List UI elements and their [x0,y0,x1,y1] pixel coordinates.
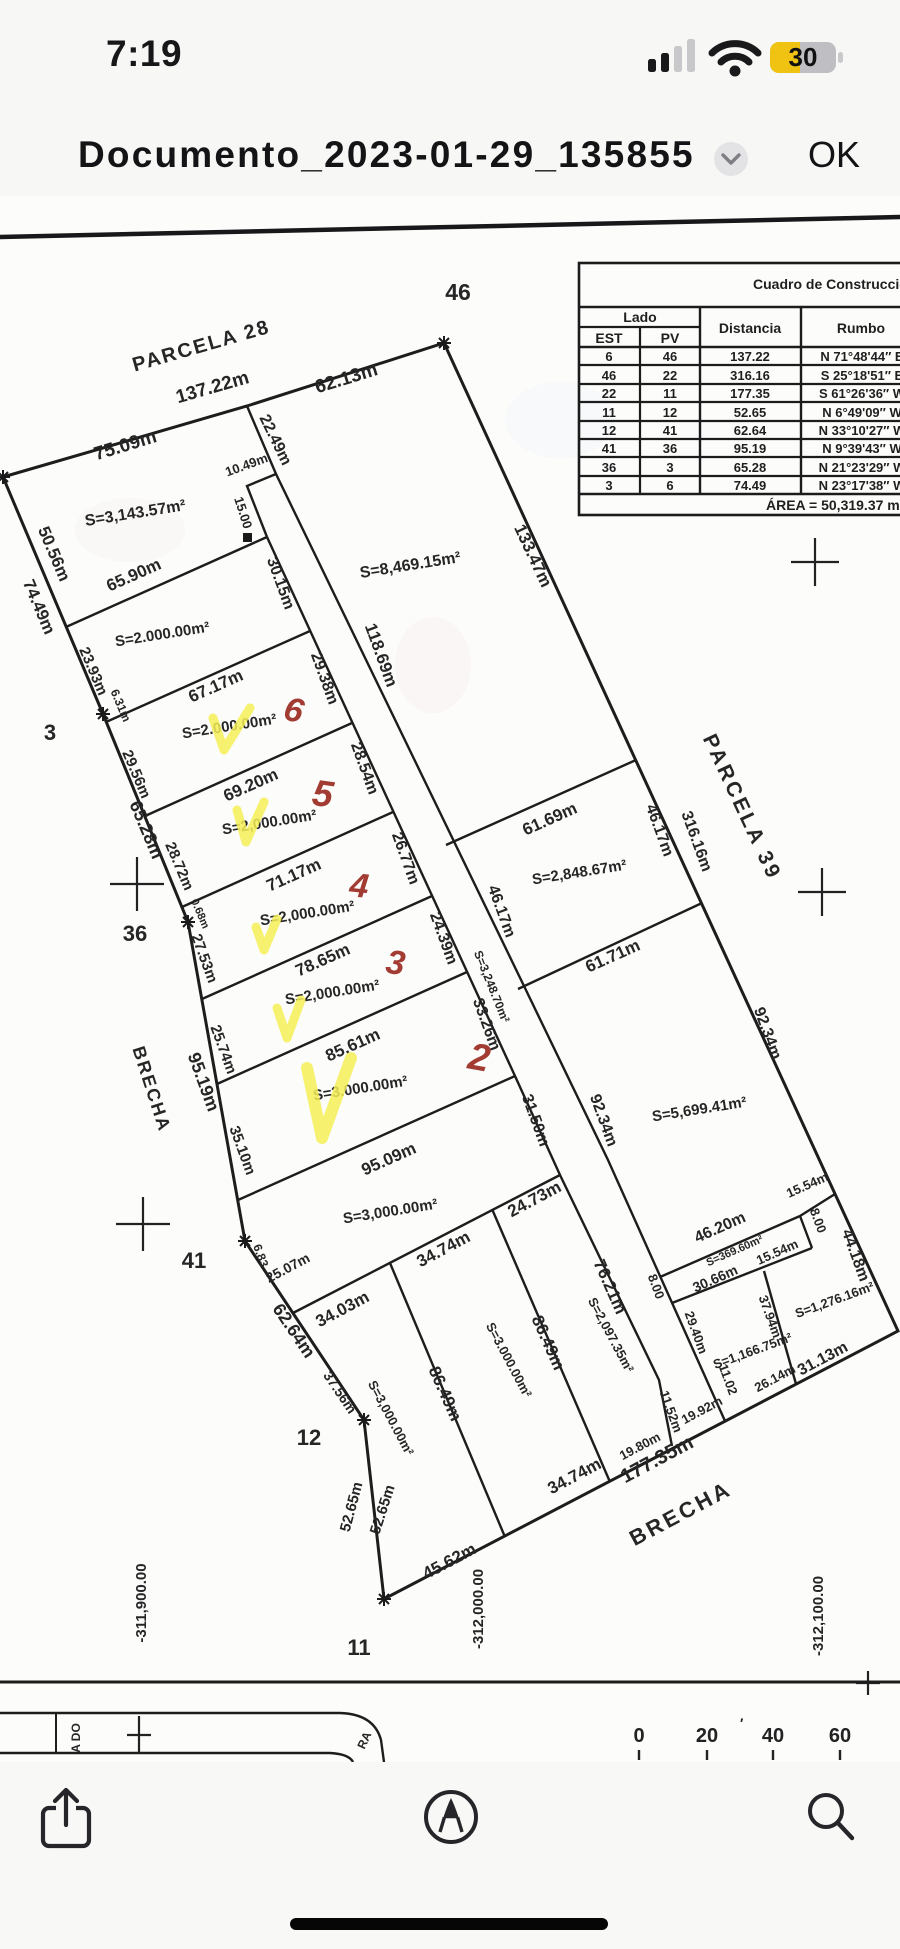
svg-text:6: 6 [605,349,612,364]
svg-text:22: 22 [602,386,616,401]
svg-text:46: 46 [602,368,616,383]
svg-text:36: 36 [123,921,147,946]
svg-text:PV: PV [661,330,680,346]
svg-text:36: 36 [663,441,677,456]
svg-text:40: 40 [762,1725,784,1747]
svg-text:12: 12 [663,405,677,420]
svg-text:62.64: 62.64 [734,423,767,438]
svg-text:12: 12 [297,1425,321,1450]
svg-text:Distancia: Distancia [719,320,781,336]
svg-text:3: 3 [44,720,56,745]
svg-text:EST: EST [595,330,623,346]
svg-text:N 71°48'44″ E: N 71°48'44″ E [820,349,900,364]
svg-text:30: 30 [789,42,818,72]
svg-text:Lado: Lado [623,309,656,325]
svg-text:4: 4 [347,866,371,906]
svg-text:3: 3 [605,478,612,493]
svg-text:74.49: 74.49 [734,478,767,493]
svg-text:20: 20 [696,1725,718,1747]
svg-text:3: 3 [666,460,673,475]
svg-text:41: 41 [182,1248,206,1273]
svg-text:-312,000.00: -312,000.00 [470,1569,487,1649]
svg-text:95.19: 95.19 [734,441,767,456]
svg-text:46: 46 [663,349,677,364]
svg-text:-312,100.00: -312,100.00 [810,1576,827,1656]
svg-text:Cuadro de Construcción: Cuadro de Construcción [753,276,900,292]
svg-text:52.65: 52.65 [734,405,767,420]
svg-text:46: 46 [445,279,471,305]
svg-text:177.35: 177.35 [730,386,770,401]
svg-text:60: 60 [829,1725,851,1747]
svg-text:-311,900.00: -311,900.00 [133,1563,150,1642]
svg-text:41: 41 [663,423,677,438]
svg-text:11: 11 [663,386,677,401]
svg-text:N 33°10'27″ W: N 33°10'27″ W [819,423,900,438]
svg-text:N 9°39'43″ W: N 9°39'43″ W [822,441,900,456]
svg-text:12: 12 [602,423,616,438]
svg-text:N 23°17'38″ W: N 23°17'38″ W [819,478,900,493]
svg-text:316.16: 316.16 [730,368,770,383]
svg-text:137.22: 137.22 [730,349,770,364]
svg-text:22: 22 [663,368,677,383]
svg-text:Rumbo: Rumbo [837,320,885,336]
svg-text:S 25°18'51″ E: S 25°18'51″ E [821,368,900,383]
svg-text:6: 6 [666,478,673,493]
svg-text:11: 11 [602,405,616,420]
svg-text:ÁREA = 50,319.37 m²: ÁREA = 50,319.37 m² [766,497,900,513]
svg-text:N 21°23'29″ W: N 21°23'29″ W [819,460,900,475]
svg-text:N 6°49'09″ W: N 6°49'09″ W [822,405,900,420]
svg-text:41: 41 [602,441,616,456]
svg-text:A DO: A DO [69,1723,83,1753]
svg-text:0: 0 [633,1725,644,1747]
svg-text:65.28: 65.28 [734,460,767,475]
svg-text:S 61°26'36″ W: S 61°26'36″ W [819,386,900,401]
svg-text:36: 36 [602,460,616,475]
svg-text:11: 11 [347,1635,370,1660]
